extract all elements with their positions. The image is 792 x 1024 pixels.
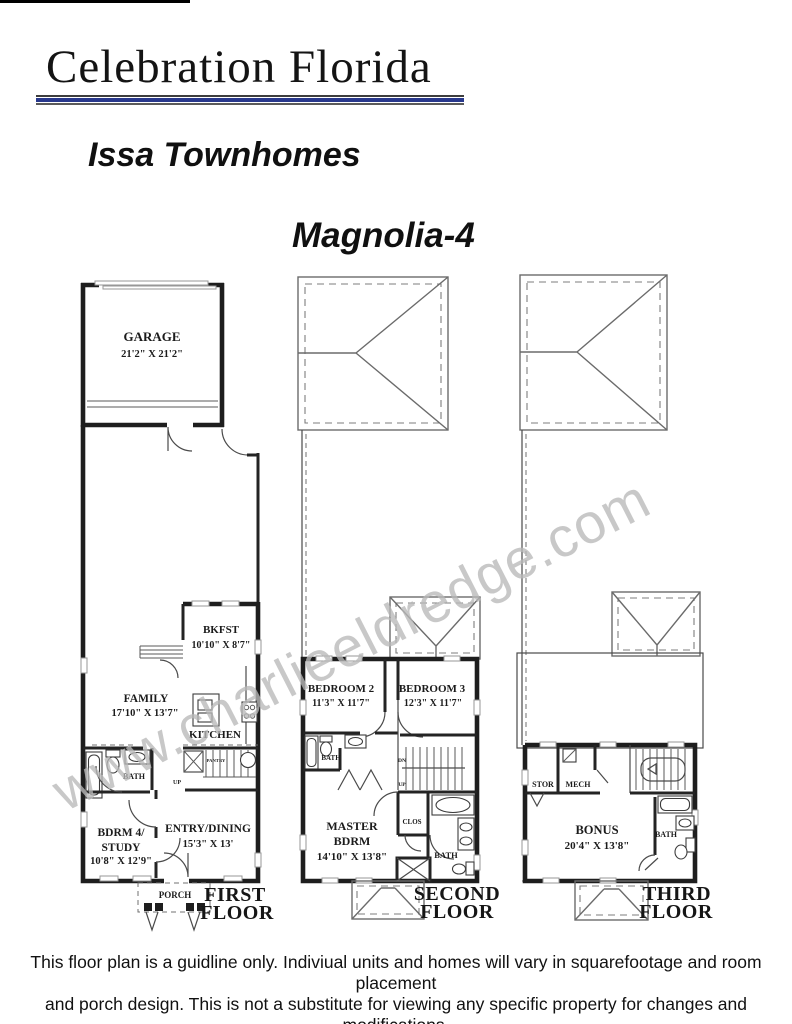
- bedroom2-label: BEDROOM 2: [308, 683, 375, 695]
- family-label: FAMILY: [124, 693, 169, 705]
- garage-roof-outline-2: [298, 277, 448, 657]
- first-floor-plan: GARAGE 21'2" X 21'2": [81, 281, 274, 930]
- entry-dims: 15'3" X 13': [183, 839, 234, 850]
- bdrm4-dims: 10'8" X 12'9": [90, 856, 152, 867]
- master-bath-room: BATH: [430, 795, 474, 875]
- bay-roof-3: [612, 592, 700, 656]
- bonus-dims: 20'4" X 13'8": [565, 840, 630, 852]
- master-dims: 14'10" X 13'8": [317, 851, 387, 863]
- master-closet-doors: [338, 770, 382, 790]
- mech-label: MECH: [566, 780, 592, 789]
- entry-dining-room: ENTRY/DINING 15'3" X 13': [165, 823, 251, 850]
- bkfst-label: BKFST: [203, 624, 240, 636]
- entry-label: ENTRY/DINING: [165, 823, 251, 835]
- bedroom3-label: BEDROOM 3: [399, 683, 466, 695]
- stairs-second-floor: DN UP: [398, 700, 465, 790]
- dn-label: DN: [398, 758, 406, 764]
- porch-first-floor: PORCH: [138, 883, 210, 930]
- garage-room: GARAGE 21'2" X 21'2": [81, 281, 224, 451]
- bath-master-label: BATH: [434, 850, 458, 860]
- disclaimer-line2: and porch design. This is not a substitu…: [0, 994, 792, 1024]
- stor-label: STOR: [532, 780, 554, 789]
- bedroom3-dims: 12'3" X 11'7": [404, 698, 462, 709]
- courtyard-walls: [222, 429, 259, 606]
- bedroom2-dims: 11'3" X 11'7": [312, 698, 370, 709]
- bonus-room: BONUS 20'4" X 13'8": [565, 823, 630, 852]
- bonus-bath-room: BATH: [639, 796, 695, 871]
- bedroom3-room: BEDROOM 3 12'3" X 11'7": [399, 683, 477, 735]
- bkfst-dims: 10'10" X 8'7": [192, 640, 251, 651]
- disclaimer: This floor plan is a guidline only. Indi…: [0, 952, 792, 1024]
- third-floor-plan: STOR MECH BONUS 20'4" X 13'8": [517, 275, 713, 923]
- garage-dims: 21'2" X 21'2": [121, 349, 183, 360]
- kitchen-label: KITCHEN: [189, 729, 241, 741]
- hall-bath-room: BATH: [303, 735, 366, 770]
- third-floor-title2: FLOOR: [639, 901, 713, 923]
- bath3-label: BATH: [655, 830, 678, 839]
- bath1-label: BATH: [123, 772, 146, 781]
- fireplace-box: [397, 858, 430, 881]
- closet-room: CLOS: [398, 792, 428, 858]
- garage-label: GARAGE: [123, 329, 180, 344]
- stor-mech-closets: STOR MECH: [525, 745, 608, 806]
- kitchen-room: KITCHEN: [92, 666, 258, 745]
- bath-room: BATH: [83, 748, 152, 798]
- garage-roof-outline-3: [520, 275, 667, 881]
- master-label2: BDRM: [334, 834, 371, 848]
- up2-label: UP: [398, 782, 406, 788]
- master-label1: MASTER: [326, 819, 378, 833]
- porch-roof-3: [575, 881, 648, 920]
- up1-label: UP: [173, 780, 181, 786]
- bonus-label: BONUS: [575, 823, 618, 837]
- second-floor-plan: BEDROOM 2 11'3" X 11'7" BEDROOM 3 12'3" …: [298, 277, 500, 923]
- family-room: FAMILY 17'10" X 13'7": [111, 693, 178, 719]
- stairs-third-floor: [630, 745, 695, 793]
- floor-plan-page: Celebration Florida Issa Townhomes Magno…: [0, 0, 792, 1024]
- family-dims: 17'10" X 13'7": [111, 708, 178, 719]
- bath-hall-label: BATH: [321, 754, 341, 762]
- second-floor-title2: FLOOR: [420, 901, 494, 923]
- bdrm4-label2: STUDY: [102, 842, 142, 854]
- pantry-label: PANTRY: [207, 758, 226, 763]
- floor-plans-canvas: GARAGE 21'2" X 21'2": [0, 0, 792, 1024]
- bkfst-room: BKFST 10'10" X 8'7": [140, 604, 250, 678]
- bdrm4-label1: BDRM 4/: [98, 827, 146, 839]
- attic-outline: [517, 653, 703, 748]
- first-floor-title2: FLOOR: [200, 902, 274, 924]
- disclaimer-line1: This floor plan is a guidline only. Indi…: [0, 952, 792, 994]
- clos-label: CLOS: [402, 818, 421, 826]
- porch-label: PORCH: [159, 890, 192, 900]
- bay-roof-2: [390, 597, 480, 659]
